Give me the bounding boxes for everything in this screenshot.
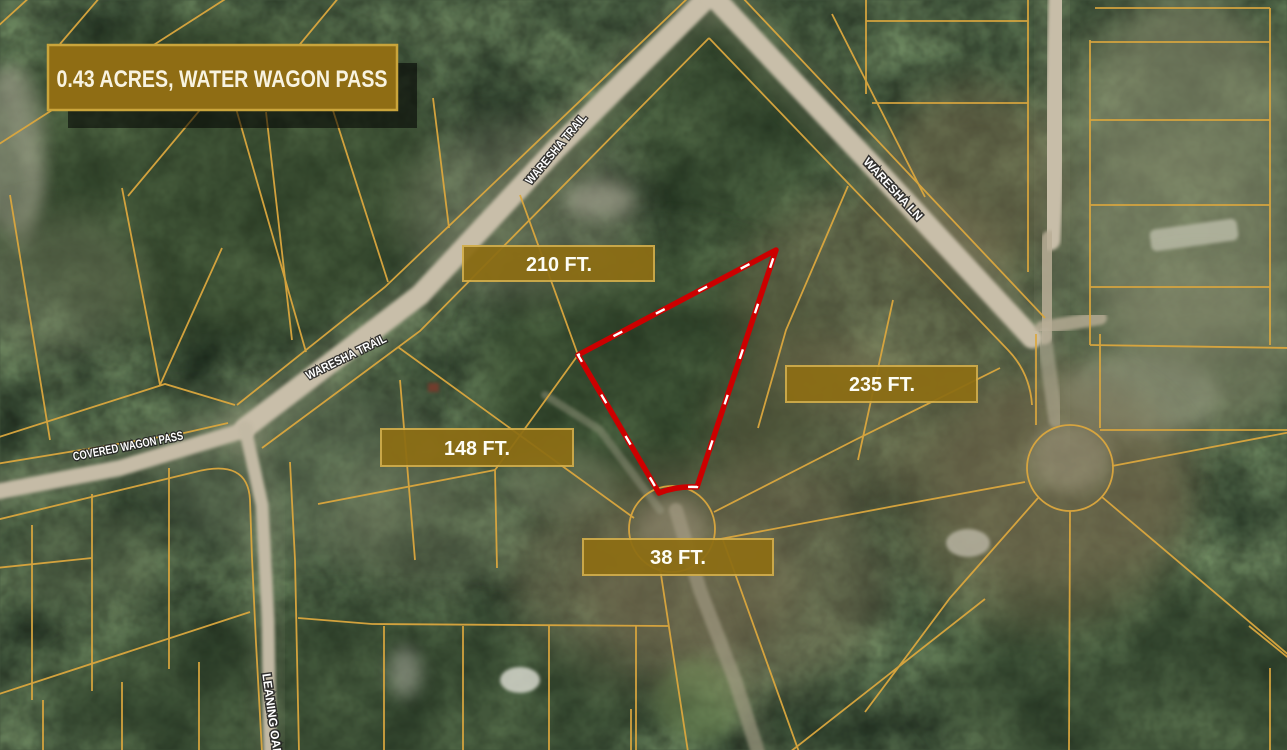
svg-text:0.43 ACRES, WATER WAGON PASS: 0.43 ACRES, WATER WAGON PASS: [57, 66, 388, 93]
svg-text:210 FT.: 210 FT.: [526, 254, 592, 276]
svg-text:148 FT.: 148 FT.: [444, 438, 510, 460]
svg-text:235 FT.: 235 FT.: [849, 374, 915, 396]
svg-text:38 FT.: 38 FT.: [650, 547, 706, 569]
